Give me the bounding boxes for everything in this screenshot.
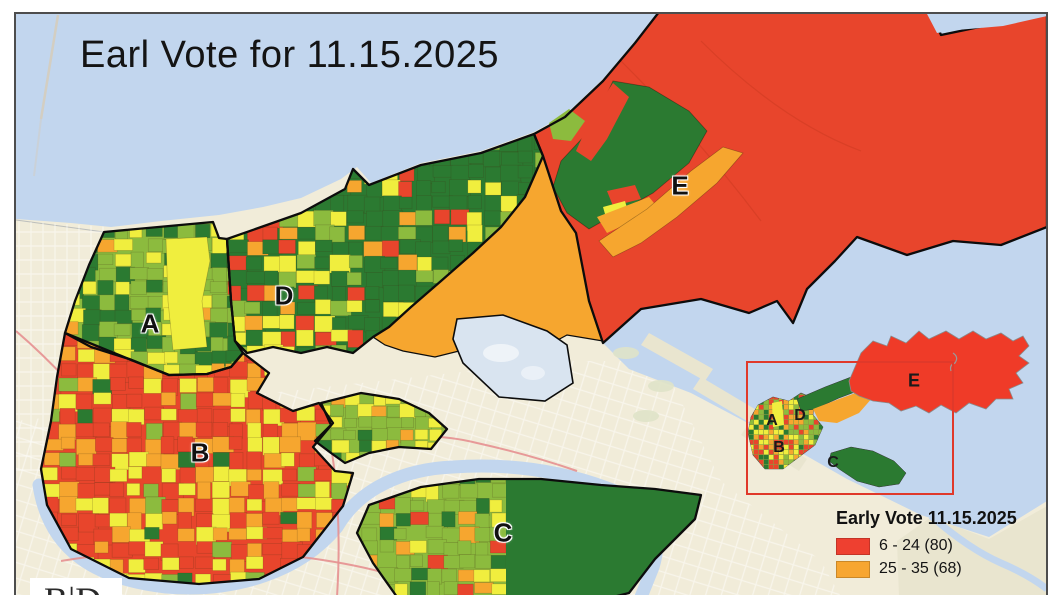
map-stage: Earl Vote for 11.15.2025 ABCDE ABCDE Ear… xyxy=(0,0,1056,595)
legend-swatch xyxy=(836,538,870,555)
legend-entry-label: 6 - 24 (80) xyxy=(879,537,953,555)
inset-label-A: A xyxy=(766,412,778,430)
legend-title: Early Vote 11.15.2025 xyxy=(836,508,1017,529)
inset-label-D: D xyxy=(794,407,806,425)
legend-rows: 6 - 24 (80)25 - 35 (68) xyxy=(836,537,1017,578)
district-label-D: D xyxy=(275,281,294,312)
legend-swatch xyxy=(836,561,870,578)
inset-label-E: E xyxy=(908,371,920,392)
district-label-A: A xyxy=(141,309,160,340)
inset-label-B: B xyxy=(773,439,785,457)
district-label-C: C xyxy=(494,518,513,549)
legend-entry-label: 25 - 35 (68) xyxy=(879,560,962,578)
district-label-B: B xyxy=(191,438,210,469)
legend: Early Vote 11.15.2025 6 - 24 (80)25 - 35… xyxy=(836,508,1017,583)
map-title: Earl Vote for 11.15.2025 xyxy=(80,34,499,77)
legend-entry: 6 - 24 (80) xyxy=(836,537,1017,555)
inset-label-C: C xyxy=(827,454,839,472)
logo-box: B|D xyxy=(30,578,122,595)
district-label-E: E xyxy=(671,171,688,202)
logo-text: B|D xyxy=(44,579,122,595)
legend-entry: 25 - 35 (68) xyxy=(836,560,1017,578)
